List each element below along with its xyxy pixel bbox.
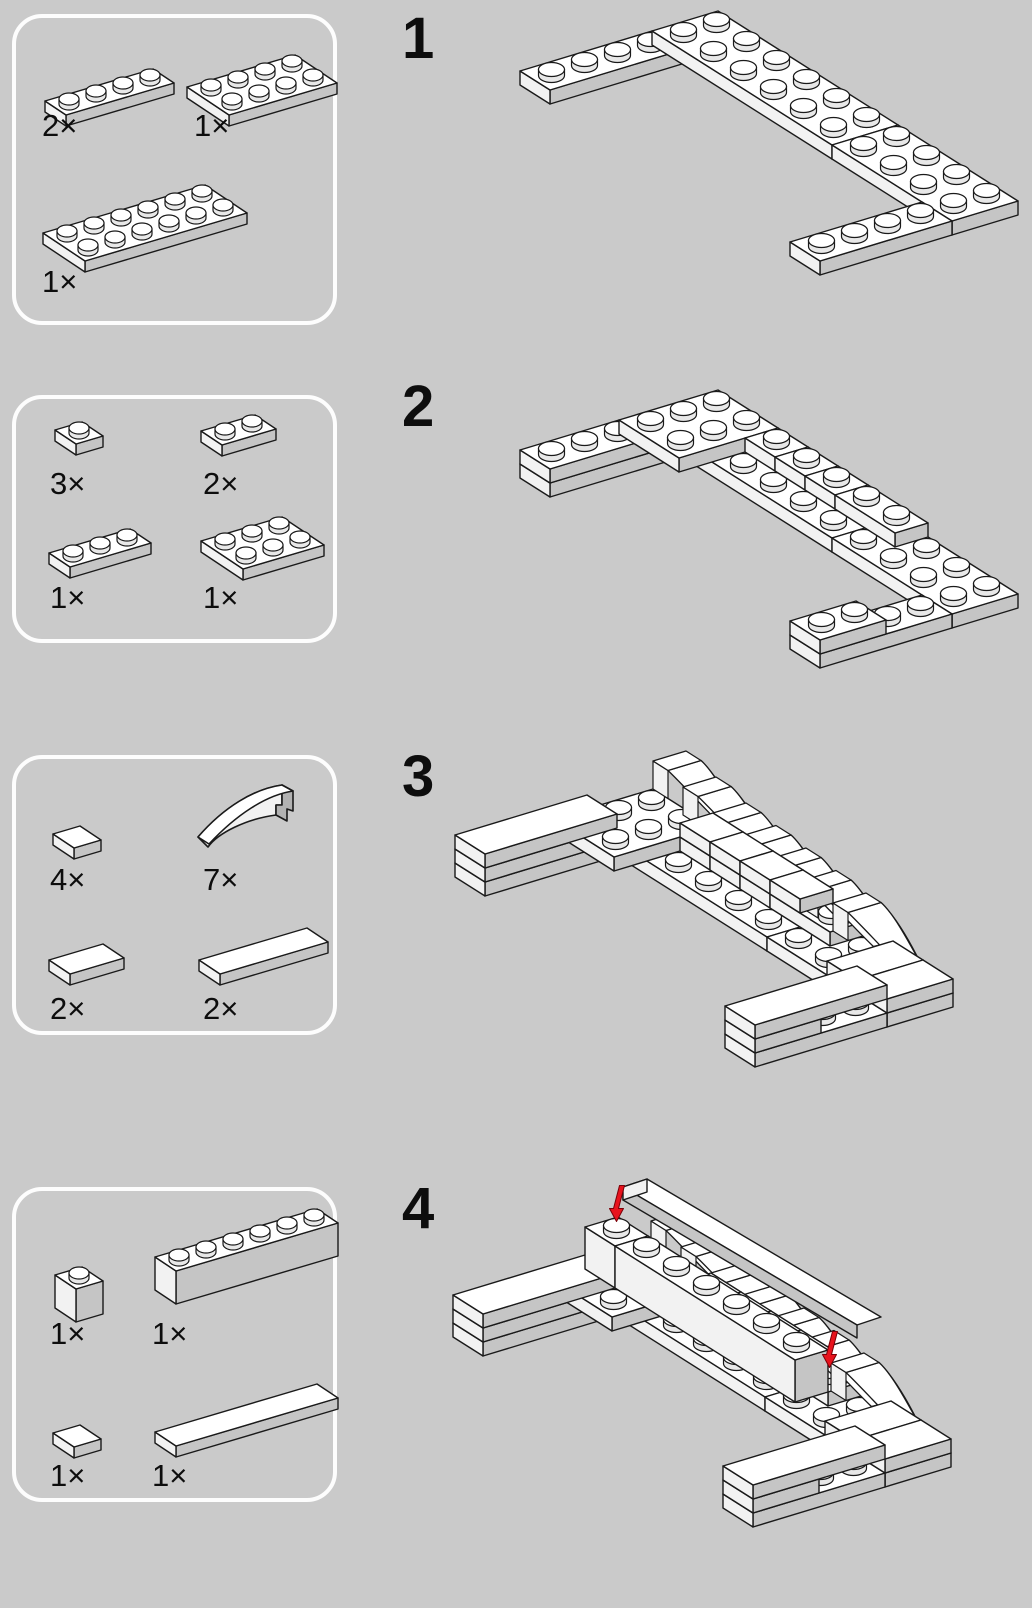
step-2-number: 2: [402, 378, 434, 436]
assembly-diagram-step-4: [420, 1128, 1032, 1608]
part-qty-label: 1×: [152, 1318, 187, 1349]
brick-1x6-icon: [150, 1192, 343, 1313]
part-qty-label: 3×: [50, 468, 85, 499]
tile-1x1-icon: [48, 1419, 106, 1460]
assembly-diagram-step-3: [420, 740, 1032, 1092]
part-qty-label: 2×: [50, 993, 85, 1024]
step-1-number: 1: [402, 10, 434, 68]
tile-1x2-icon: [44, 938, 129, 987]
part-qty-label: 2×: [203, 993, 238, 1024]
plate-1x2-icon: [196, 398, 281, 465]
part-qty-label: 1×: [203, 582, 238, 613]
part-qty-label: 4×: [50, 864, 85, 895]
assembly-diagram-step-1: [440, 0, 1032, 332]
part-qty-label: 2×: [42, 110, 77, 141]
part-qty-label: 1×: [42, 266, 77, 297]
tile-1x4-icon: [194, 922, 333, 987]
plate-1x1-icon: [50, 405, 108, 464]
plate-1x3-icon: [44, 512, 156, 587]
plate-2x3-icon: [196, 500, 329, 589]
part-qty-label: 1×: [50, 1318, 85, 1349]
part-qty-label: 1×: [50, 1460, 85, 1491]
part-qty-label: 1×: [194, 110, 229, 141]
slope-curved-1x2-icon: [190, 775, 310, 863]
tile-1x1-icon: [48, 820, 106, 861]
part-qty-label: 2×: [203, 468, 238, 499]
part-qty-label: 1×: [50, 582, 85, 613]
lego-instruction-page: 1 2 3 4 2×1×1×3×2×1×1×4×7×2×2×1×1×1×1×: [0, 0, 1032, 1608]
part-qty-label: 1×: [152, 1460, 187, 1491]
assembly-diagram-step-2: [440, 370, 1032, 700]
tile-1x6-icon: [150, 1378, 343, 1459]
part-qty-label: 7×: [203, 864, 238, 895]
